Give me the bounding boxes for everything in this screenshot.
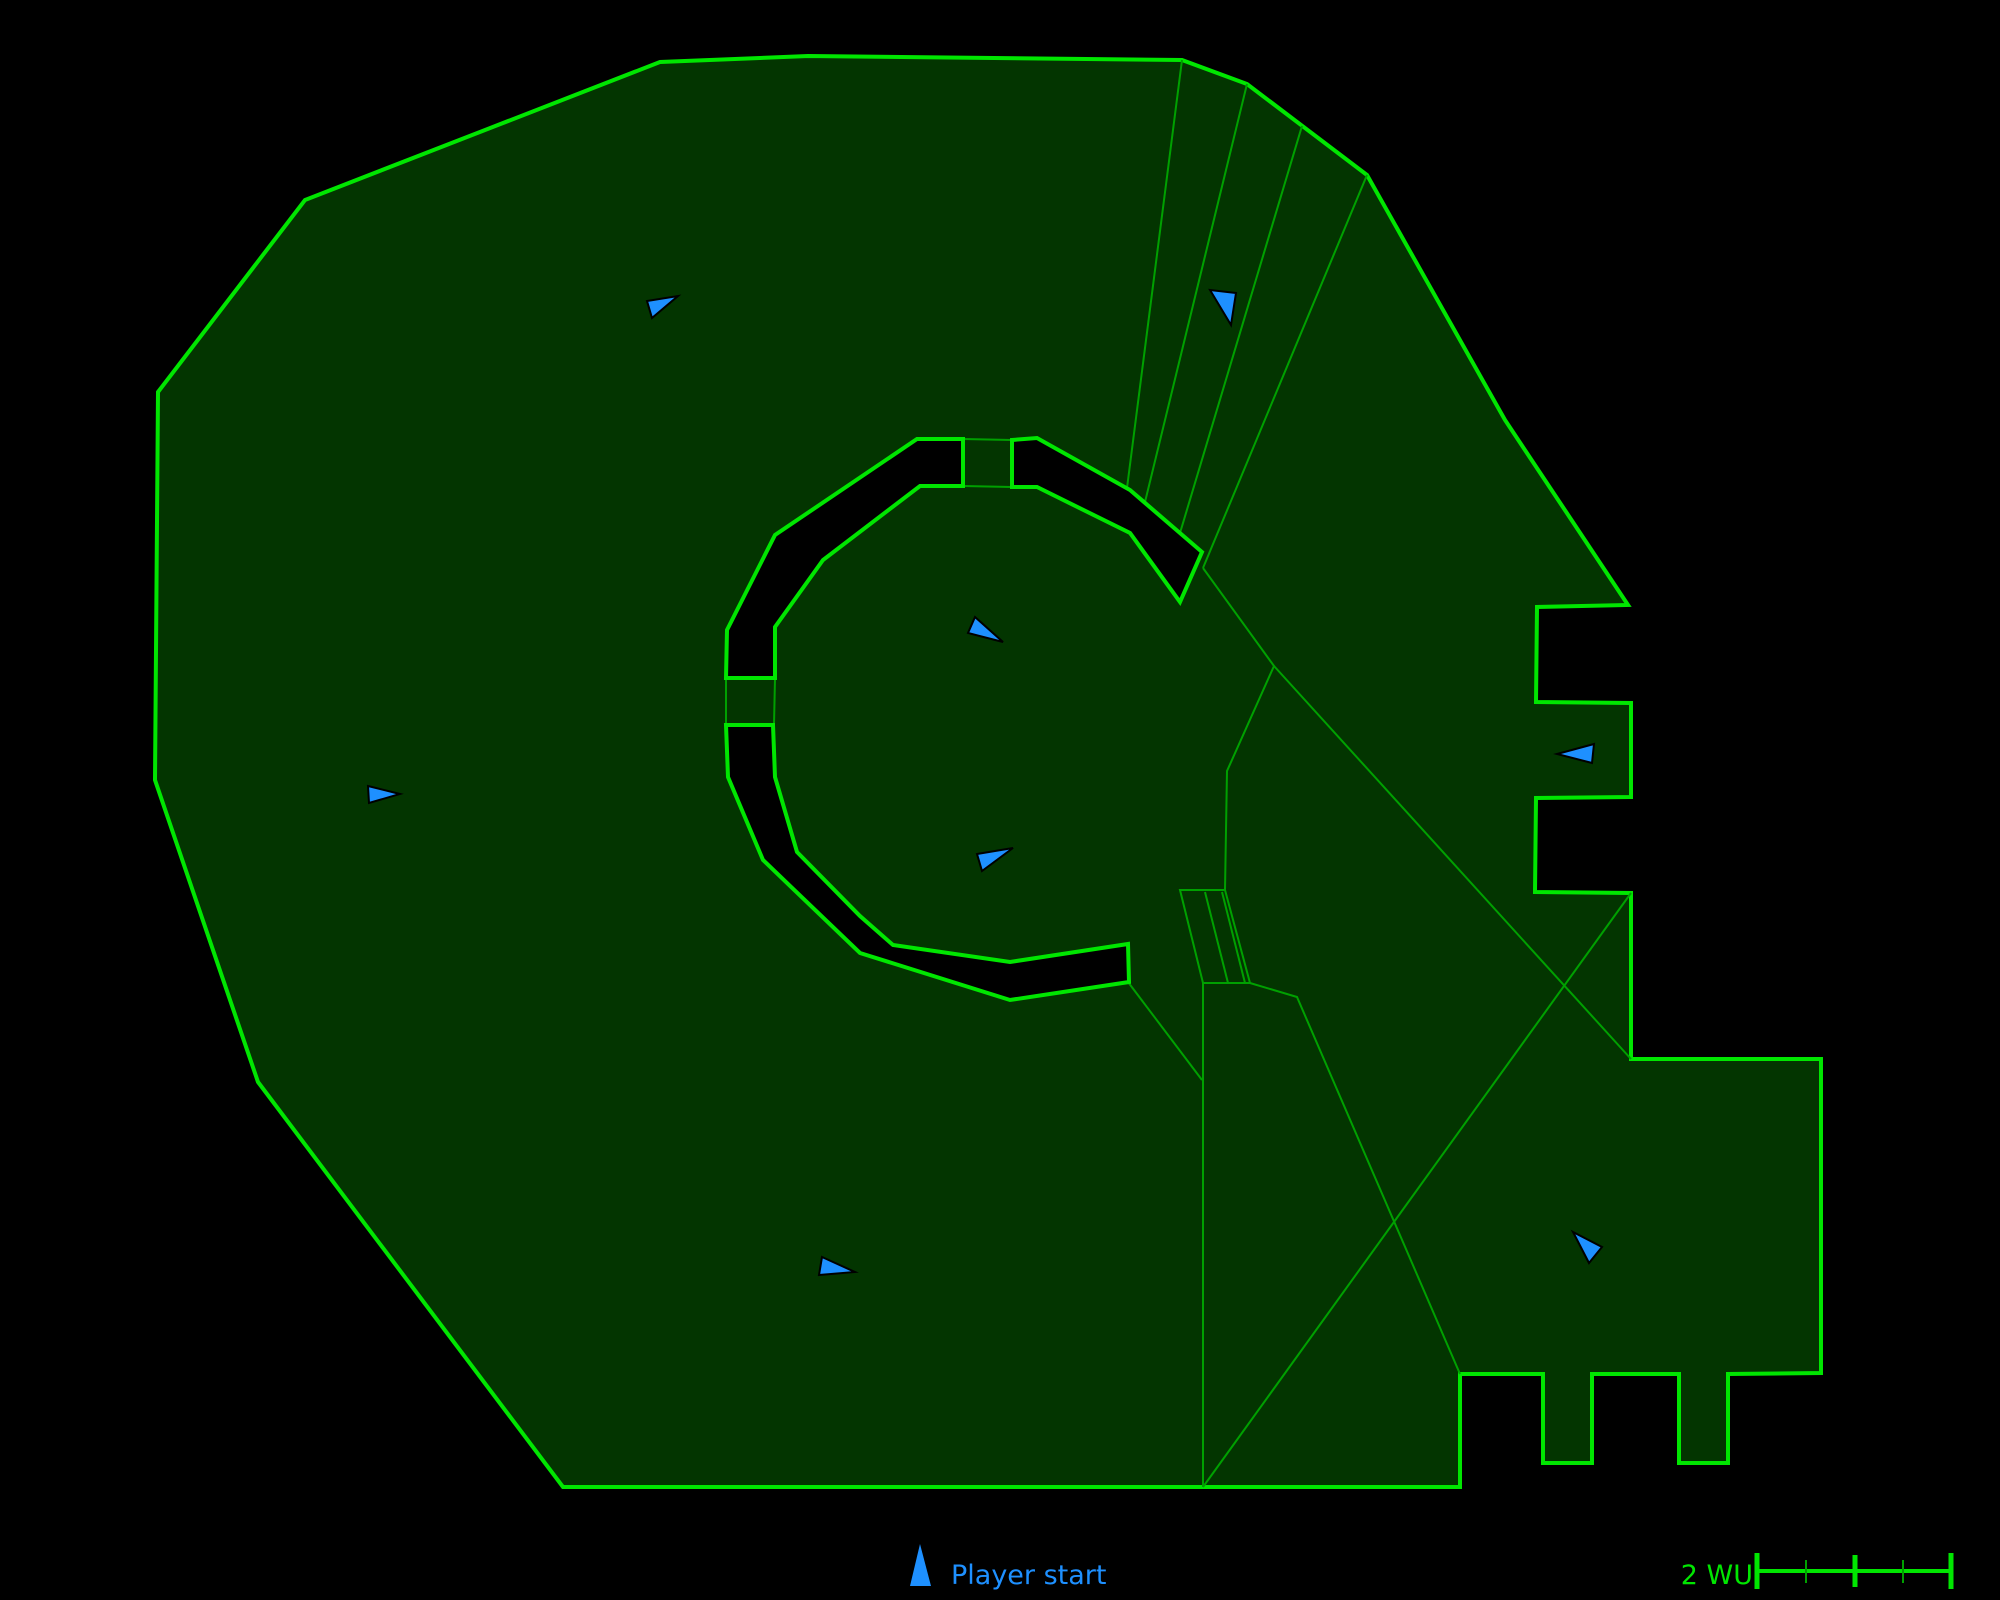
scale-ruler xyxy=(1757,1553,1951,1589)
legend: Player start xyxy=(910,1544,1107,1591)
polygon-edge-line xyxy=(963,486,1012,487)
map-editor-stage: Player start 2 WU xyxy=(0,0,2000,1600)
legend-label: Player start xyxy=(951,1560,1107,1591)
walkable-area-polygon[interactable] xyxy=(155,56,1821,1487)
player-start-icon xyxy=(910,1544,931,1586)
polygon-edge-line xyxy=(963,439,1012,440)
scale-label: 2 WU xyxy=(1681,1560,1753,1591)
map-canvas[interactable]: Player start 2 WU xyxy=(0,0,2000,1600)
scale-bar: 2 WU xyxy=(1681,1553,1951,1591)
polygon-edge-line xyxy=(774,678,775,725)
map-outline xyxy=(155,56,1821,1487)
